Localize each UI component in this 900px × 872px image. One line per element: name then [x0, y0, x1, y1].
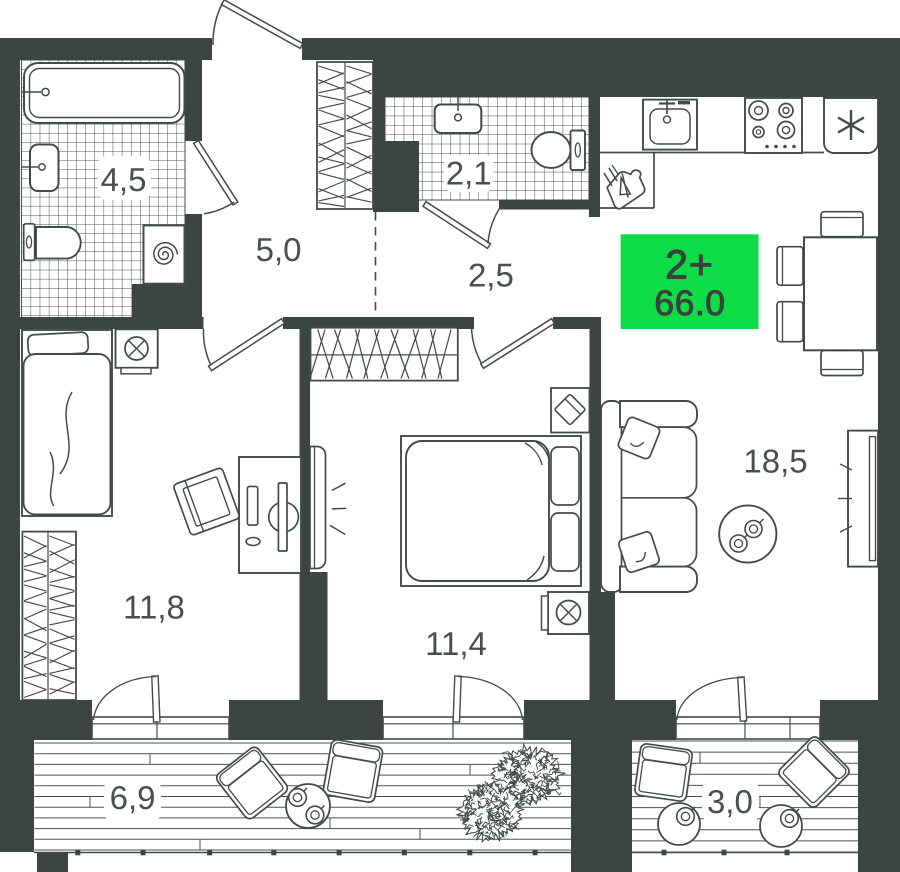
svg-text:2,1: 2,1 — [446, 155, 492, 192]
svg-text:4,5: 4,5 — [101, 161, 147, 198]
svg-text:11,8: 11,8 — [123, 589, 185, 626]
svg-text:6,9: 6,9 — [110, 779, 156, 816]
svg-text:66.0: 66.0 — [654, 283, 725, 323]
svg-text:5,0: 5,0 — [256, 231, 302, 268]
svg-text:18,5: 18,5 — [743, 443, 807, 480]
svg-text:2,5: 2,5 — [468, 257, 514, 294]
svg-text:11,4: 11,4 — [425, 625, 487, 662]
svg-text:3,0: 3,0 — [707, 783, 753, 820]
svg-text:2+: 2+ — [665, 241, 714, 287]
